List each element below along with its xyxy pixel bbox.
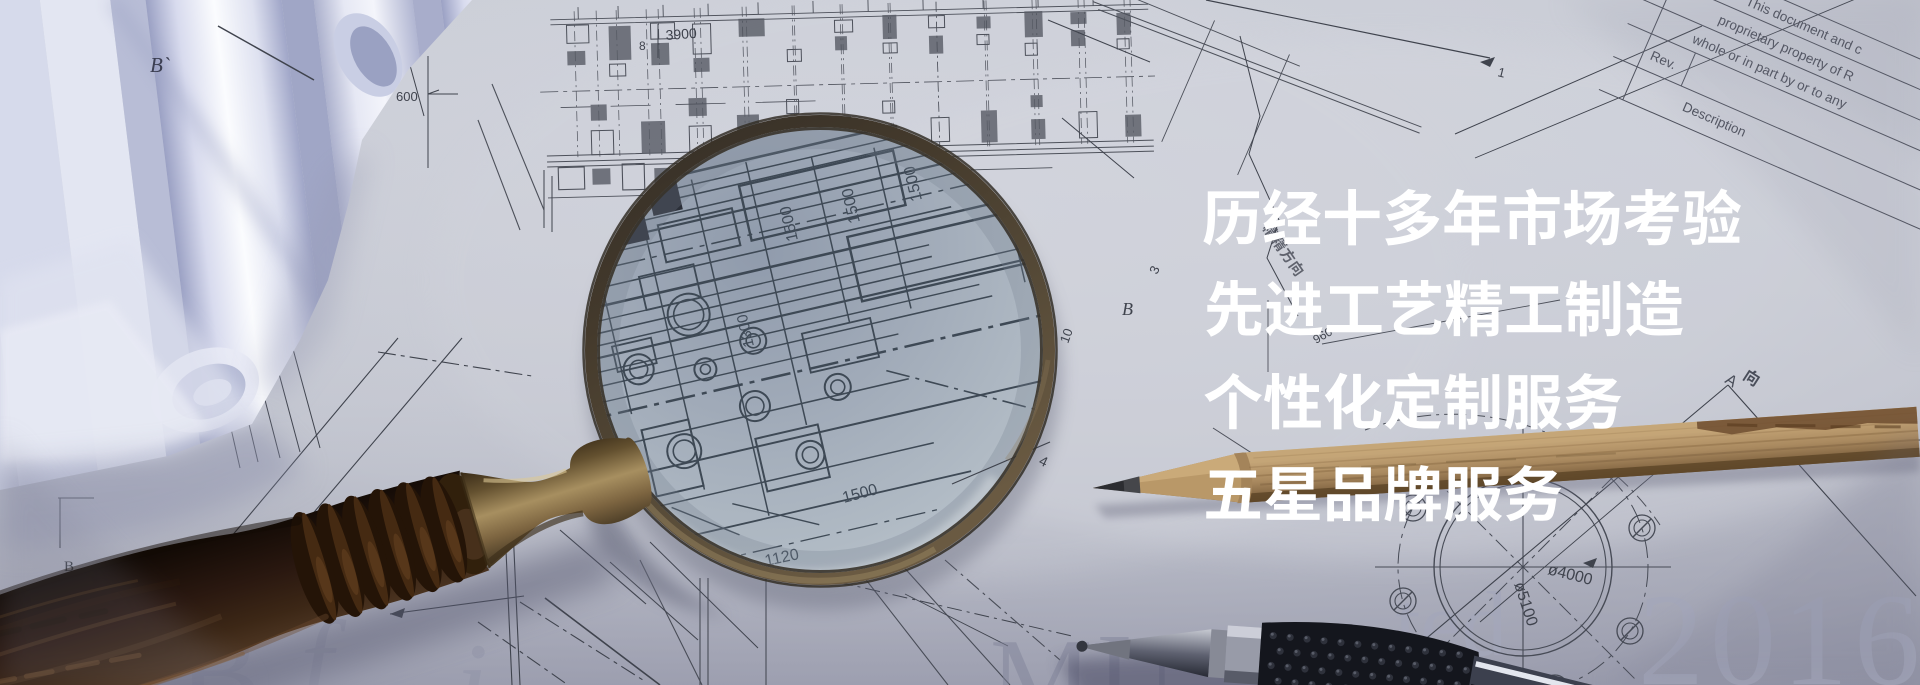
svg-text:600: 600 xyxy=(396,89,418,104)
svg-text:B: B xyxy=(1122,299,1133,319)
svg-text:8: 8 xyxy=(639,39,646,53)
svg-text:B`: B` xyxy=(150,53,170,77)
svg-text:3900: 3900 xyxy=(665,25,697,43)
